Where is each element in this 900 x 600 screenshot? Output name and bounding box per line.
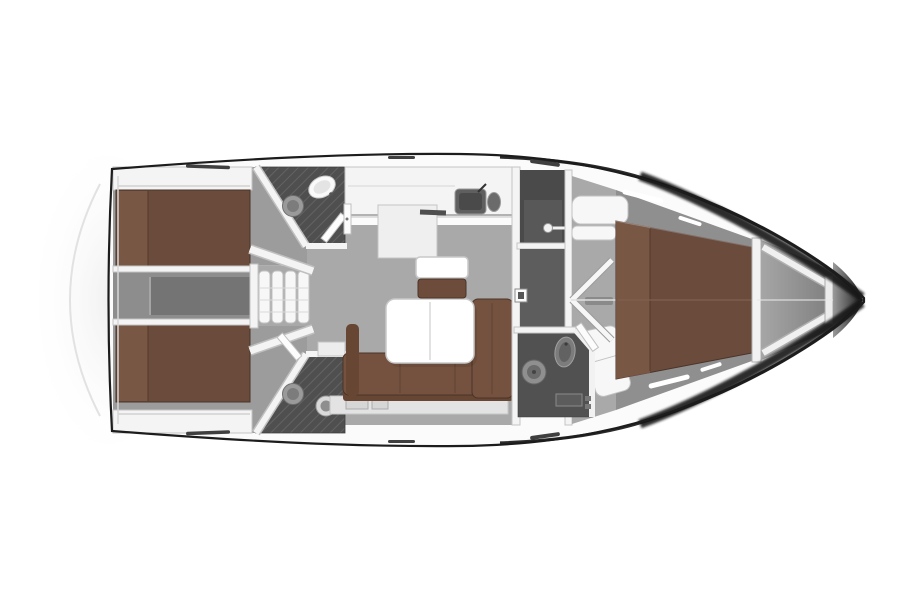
- settee: [416, 257, 468, 298]
- aft-berth-port: [116, 190, 250, 271]
- yacht-floor-plan-page: [0, 0, 900, 600]
- salon-table: [386, 299, 477, 367]
- midship-locker: [517, 170, 569, 249]
- fwd-shelf: [572, 226, 616, 240]
- fwd-cabinet: [572, 196, 628, 224]
- toilet-fixture: [283, 384, 304, 405]
- stove: [420, 210, 446, 216]
- yacht-floor-plan: [0, 0, 900, 600]
- door-knob: [544, 224, 553, 233]
- toilet-fixture: [283, 196, 304, 217]
- forward-head: [514, 323, 598, 417]
- sofa-end-locker: [318, 342, 345, 356]
- v-berth: [616, 221, 752, 379]
- faucet: [329, 192, 333, 196]
- corridor: [515, 249, 566, 329]
- toilet-fixture: [522, 360, 546, 384]
- aft-berth-starboard: [116, 321, 250, 402]
